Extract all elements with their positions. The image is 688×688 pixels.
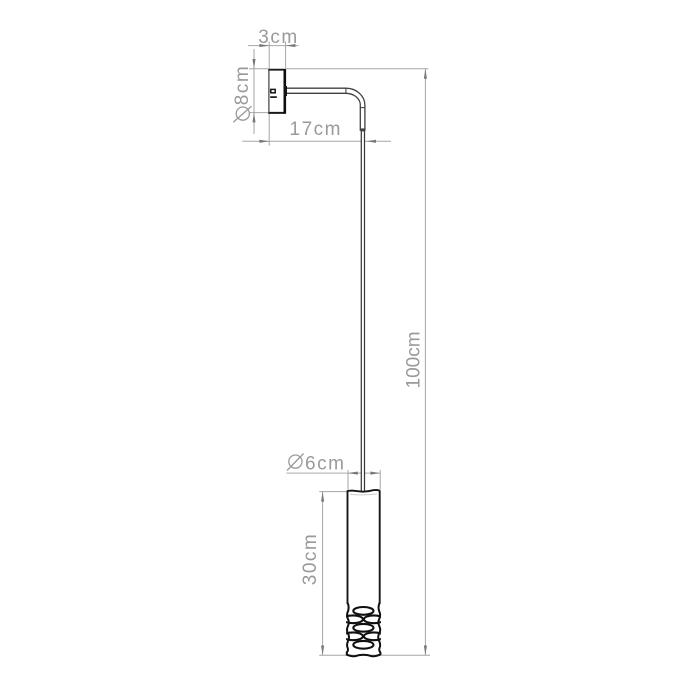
svg-text:17cm: 17cm	[290, 119, 342, 140]
svg-text:6cm: 6cm	[305, 453, 345, 474]
svg-text:100cm: 100cm	[404, 331, 425, 388]
svg-text:8cm: 8cm	[232, 65, 253, 105]
svg-text:30cm: 30cm	[300, 533, 321, 585]
svg-text:3cm: 3cm	[258, 27, 298, 48]
